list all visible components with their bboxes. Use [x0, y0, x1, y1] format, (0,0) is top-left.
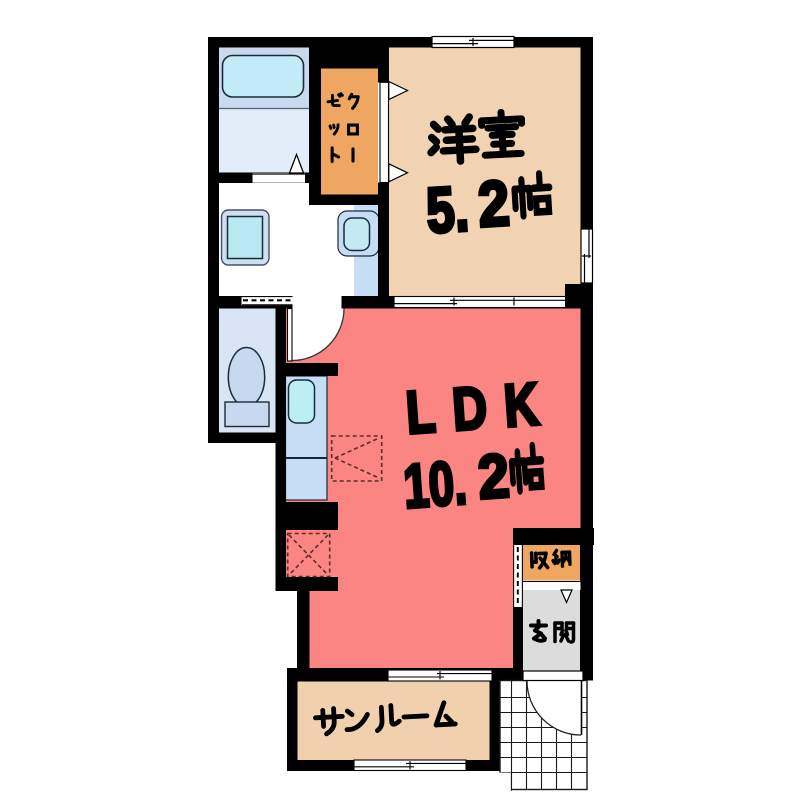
svg-text:5.: 5.	[424, 172, 470, 246]
svg-text:LDK: LDK	[404, 369, 558, 446]
svg-text:2: 2	[476, 442, 512, 513]
svg-text:2: 2	[476, 167, 511, 241]
svg-text:10.: 10.	[401, 449, 469, 522]
